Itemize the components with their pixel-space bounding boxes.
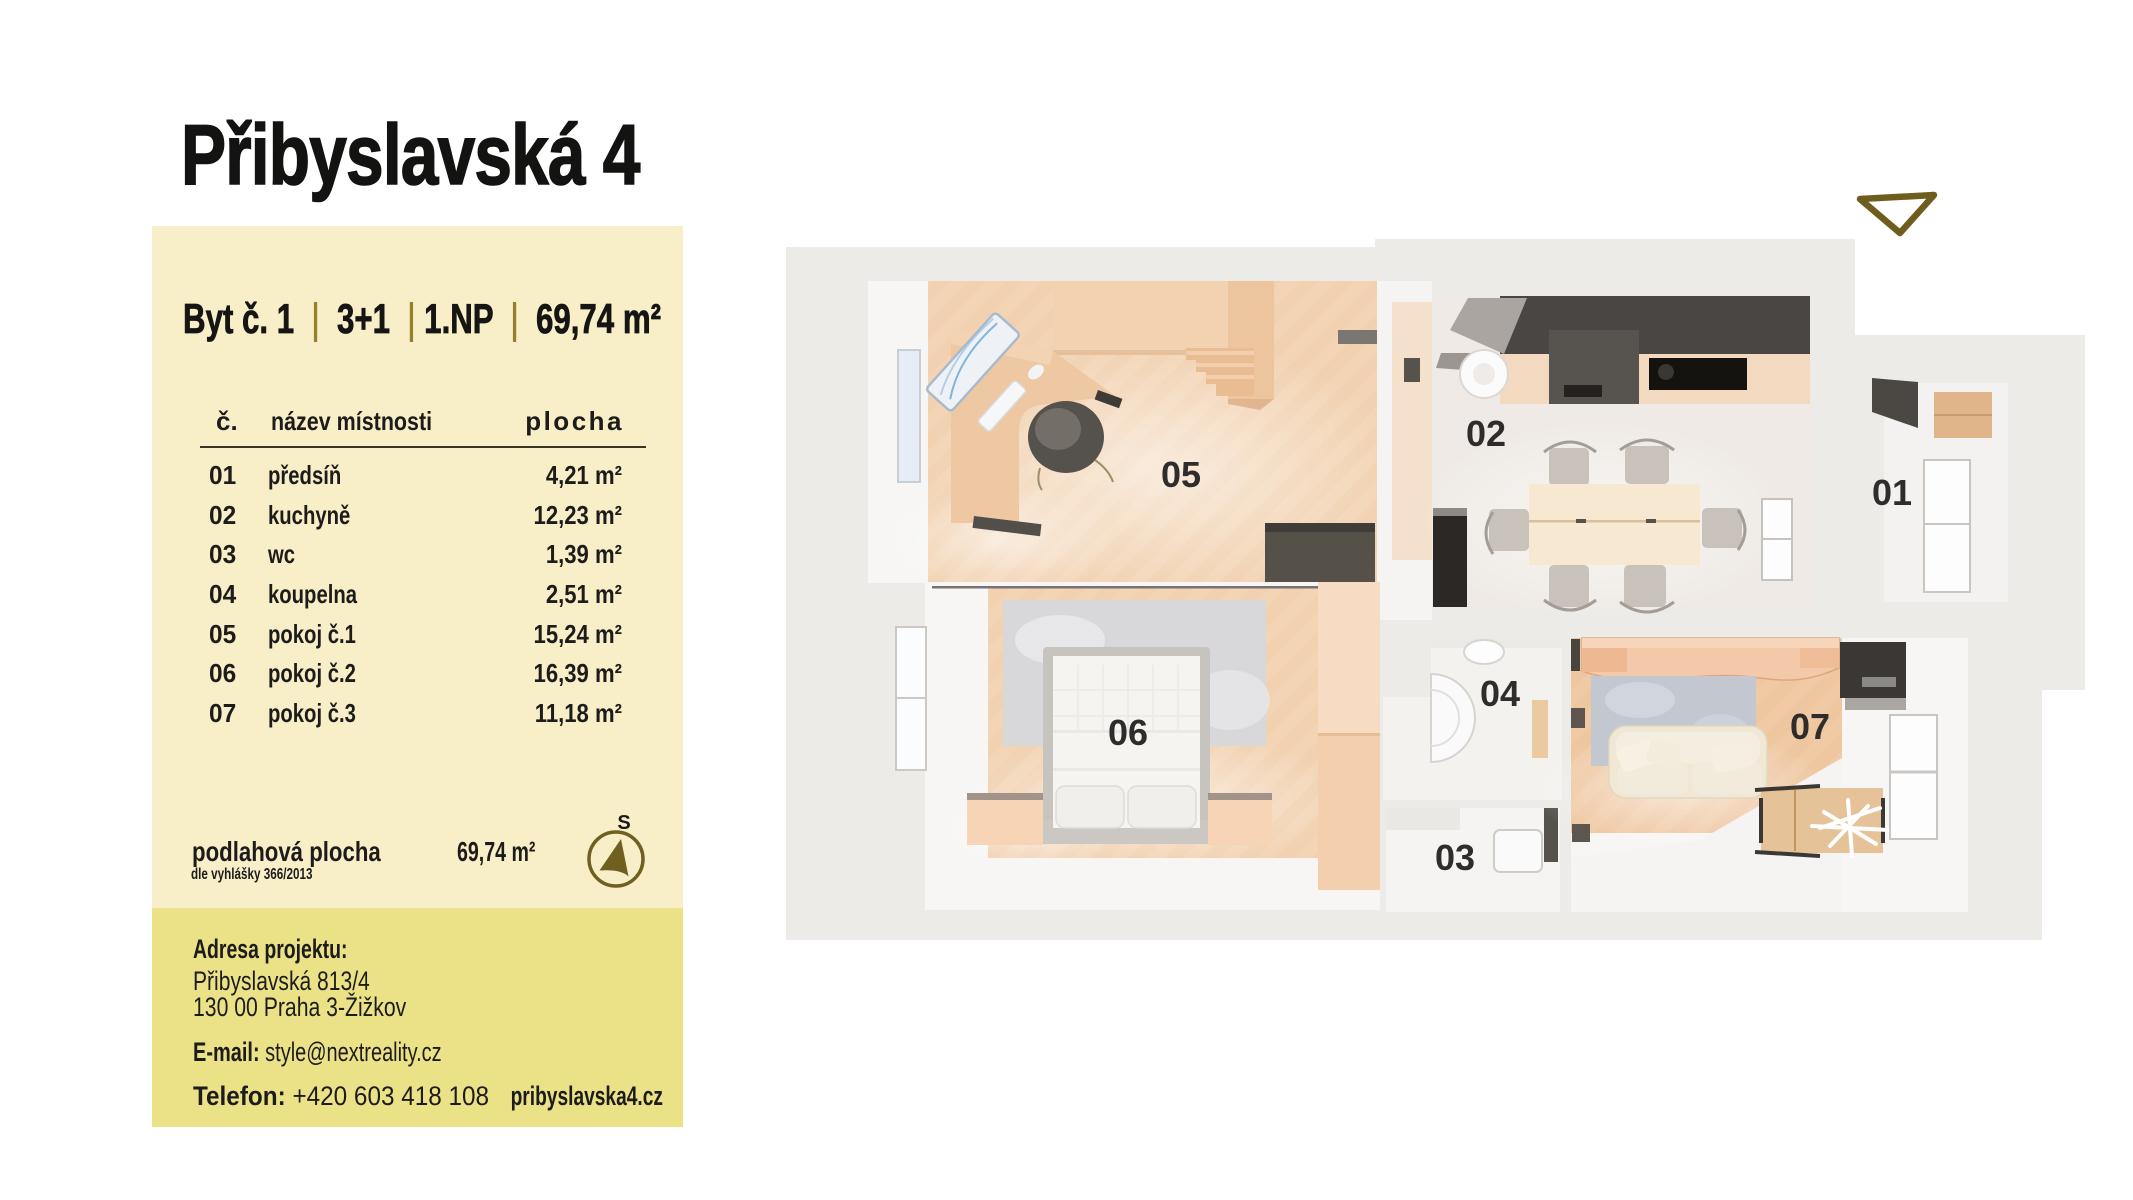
svg-text:06: 06 (1108, 712, 1148, 753)
svg-text:02: 02 (1466, 413, 1506, 454)
svg-text:01: 01 (1872, 472, 1912, 513)
svg-text:07: 07 (1790, 706, 1830, 747)
svg-text:05: 05 (1161, 454, 1201, 495)
svg-text:04: 04 (1480, 673, 1520, 714)
svg-text:03: 03 (1435, 837, 1475, 878)
